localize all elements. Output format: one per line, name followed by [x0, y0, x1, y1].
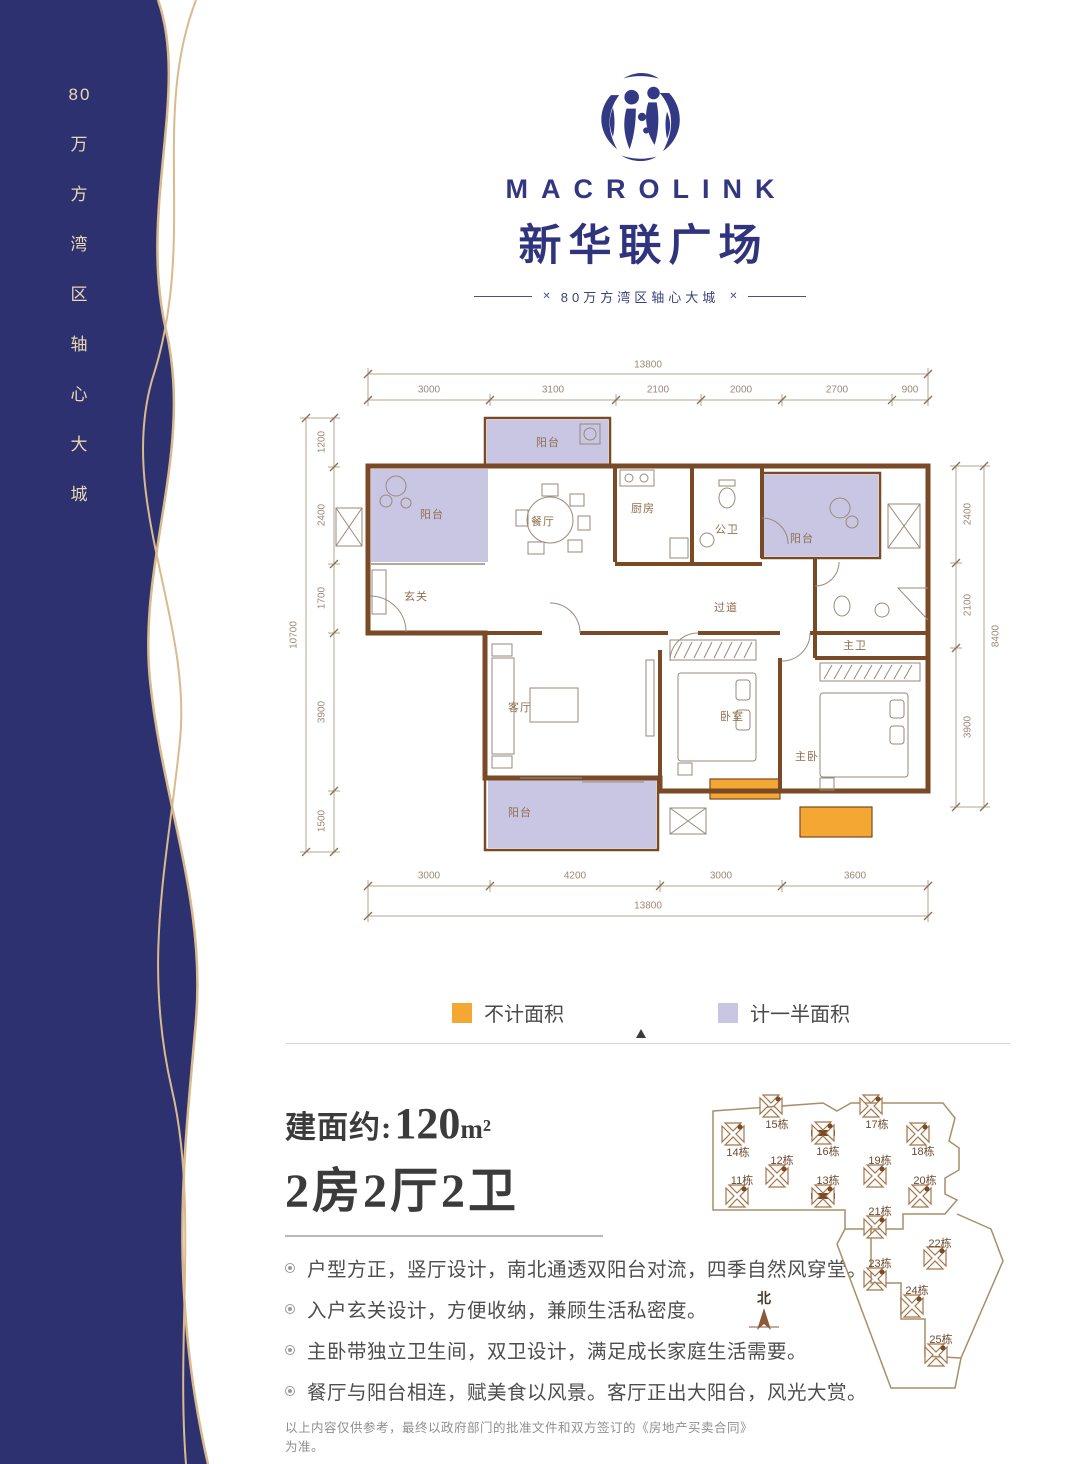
building-label: 17栋	[865, 1116, 888, 1132]
feature-item: 餐厅与阳台相连，赋美食以风景。客厅正出大阳台，风光大赏。	[285, 1376, 755, 1405]
dim-label: 3000	[418, 871, 440, 882]
bullet-icon	[285, 1304, 295, 1314]
building-label: 16栋	[816, 1143, 839, 1159]
room-label-balcony-right: 阳台	[790, 530, 814, 546]
logo-block: MACROLINK 新华联广场 ✕ 80万方湾区轴心大城 ✕	[410, 66, 870, 306]
tagline-tick-right: ✕	[729, 291, 737, 302]
slogan-token: 大	[71, 436, 90, 453]
room-label-corridor: 过道	[714, 599, 738, 615]
building-label: 21栋	[868, 1203, 891, 1219]
dim-label: 2700	[826, 385, 848, 396]
area-line: 建面约:120m²	[285, 1098, 755, 1149]
dim-label: 13800	[634, 901, 662, 912]
headline-underline	[285, 1235, 603, 1237]
macrolink-emblem-icon	[588, 66, 692, 170]
sidebar-vertical-slogan: 80 万 方 湾 区 轴 心 大 城	[58, 86, 102, 503]
slogan-token: 城	[71, 486, 90, 503]
unit-info: 建面约:120m² 2房2厅2卫 户型方正，竖厅设计，南北通透双阳台对流，四季自…	[285, 1098, 755, 1455]
dim-label: 4200	[564, 871, 586, 882]
divider-arrow-icon	[636, 1029, 646, 1038]
building-label: 25栋	[929, 1331, 952, 1347]
area-value: 120	[394, 1098, 460, 1149]
slogan-token: 80	[69, 86, 92, 103]
dim-label: 3100	[542, 385, 564, 396]
no-area-label: 不计面积	[484, 998, 564, 1027]
area-colon: :	[381, 1110, 392, 1146]
slogan-token: 区	[71, 286, 90, 303]
dim-label: 3000	[710, 871, 732, 882]
dim-label: 2100	[647, 385, 669, 396]
dim-label: 13800	[634, 360, 662, 371]
tagline-tick-left: ✕	[542, 291, 550, 302]
tagline-rule-left	[474, 296, 532, 297]
room-label-living: 客厅	[508, 699, 532, 715]
feature-item: 入户玄关设计，方便收纳，兼顾生活私密度。	[285, 1294, 755, 1323]
building-label: 22栋	[928, 1235, 951, 1251]
dim-label: 1700	[317, 587, 328, 609]
dim-label: 3900	[317, 701, 328, 723]
brand-wordmark: MACROLINK	[410, 174, 870, 205]
room-label-balcony-top: 阳台	[536, 434, 560, 450]
dim-label: 3900	[963, 716, 974, 738]
slogan-token: 方	[71, 186, 90, 203]
disclaimer-text: 以上内容仅供参考，最终以政府部门的批准文件和双方签订的《房地产买卖合同》为准。	[285, 1417, 755, 1455]
room-label-dining: 餐厅	[531, 513, 555, 529]
no-area-swatch	[452, 1003, 472, 1023]
building-label: 20栋	[913, 1172, 936, 1188]
building-label: 11栋	[731, 1172, 753, 1188]
bullet-icon	[285, 1345, 295, 1355]
bullet-icon	[285, 1263, 295, 1273]
room-label-master-bath: 主卫	[843, 637, 867, 653]
section-divider	[286, 1043, 1010, 1044]
unit-headline: 2房2厅2卫	[285, 1151, 755, 1221]
dim-label: 10700	[289, 621, 300, 649]
legend-half-area: 计一半面积	[718, 998, 850, 1027]
dim-label: 3000	[418, 385, 440, 396]
legend-no-area: 不计面积	[452, 998, 564, 1027]
room-label-foyer: 玄关	[404, 588, 428, 604]
siteplan-drawing	[693, 1086, 1023, 1426]
dim-label: 2400	[963, 503, 974, 525]
slogan-token: 湾	[71, 236, 90, 253]
dim-label: 2000	[730, 385, 752, 396]
room-label-kitchen: 厨房	[631, 500, 655, 516]
slogan-token: 心	[71, 386, 90, 403]
slogan-token: 万	[71, 136, 90, 153]
area-label: 建面约	[285, 1102, 381, 1147]
dim-label: 8400	[991, 625, 1002, 647]
tagline-text: 80万方湾区轴心大城	[561, 287, 719, 306]
tagline-row: ✕ 80万方湾区轴心大城 ✕	[410, 287, 870, 306]
room-label-bedroom: 卧室	[720, 708, 744, 724]
room-label-balcony-bottom: 阳台	[508, 804, 532, 820]
room-label-master-bedroom: 主卧	[795, 748, 819, 764]
building-label: 13栋	[816, 1172, 839, 1188]
project-name: 新华联广场	[410, 211, 870, 273]
bullet-icon	[285, 1386, 295, 1396]
floorplan: 13800 3000 3100 2100 2000 2700 900 10700…	[280, 358, 1010, 963]
room-label-guest-bath: 公卫	[715, 521, 739, 537]
feature-list: 户型方正，竖厅设计，南北通透双阳台对流，四季自然风穿堂。 入户玄关设计，方便收纳…	[285, 1253, 755, 1405]
building-label: 12栋	[770, 1152, 793, 1168]
sidebar-wave-panel: 80 万 方 湾 区 轴 心 大 城	[0, 0, 230, 1464]
building-label: 18栋	[911, 1143, 934, 1159]
building-label: 24栋	[905, 1282, 928, 1298]
north-label: 北	[757, 1288, 771, 1308]
building-label: 23栋	[868, 1255, 891, 1271]
feature-text: 入户玄关设计，方便收纳，兼顾生活私密度。	[307, 1294, 707, 1323]
area-unit: m²	[460, 1114, 491, 1145]
brochure-page: 80 万 方 湾 区 轴 心 大 城	[0, 0, 1080, 1464]
dim-label: 2100	[963, 594, 974, 616]
wave-graphic	[0, 0, 230, 1464]
dim-label: 1500	[317, 810, 328, 832]
building-label: 14栋	[726, 1144, 749, 1160]
tagline-rule-right	[748, 296, 806, 297]
siteplan: 11栋 12栋 13栋 14栋 15栋 16栋 17栋 18栋 19栋 20栋 …	[693, 1086, 1023, 1426]
building-label: 19栋	[868, 1152, 891, 1168]
dim-label: 3600	[844, 871, 866, 882]
room-label-balcony-left: 阳台	[420, 506, 444, 522]
dim-label: 1200	[317, 431, 328, 453]
feature-item: 户型方正，竖厅设计，南北通透双阳台对流，四季自然风穿堂。	[285, 1253, 755, 1282]
dim-label: 900	[902, 385, 919, 396]
building-label: 15栋	[765, 1116, 788, 1132]
half-area-label: 计一半面积	[750, 998, 850, 1027]
dim-label: 2400	[317, 504, 328, 526]
slogan-token: 轴	[71, 336, 90, 353]
feature-item: 主卧带独立卫生间，双卫设计，满足成长家庭生活需要。	[285, 1335, 755, 1364]
half-area-swatch	[718, 1003, 738, 1023]
floorplan-drawing	[280, 358, 1010, 963]
